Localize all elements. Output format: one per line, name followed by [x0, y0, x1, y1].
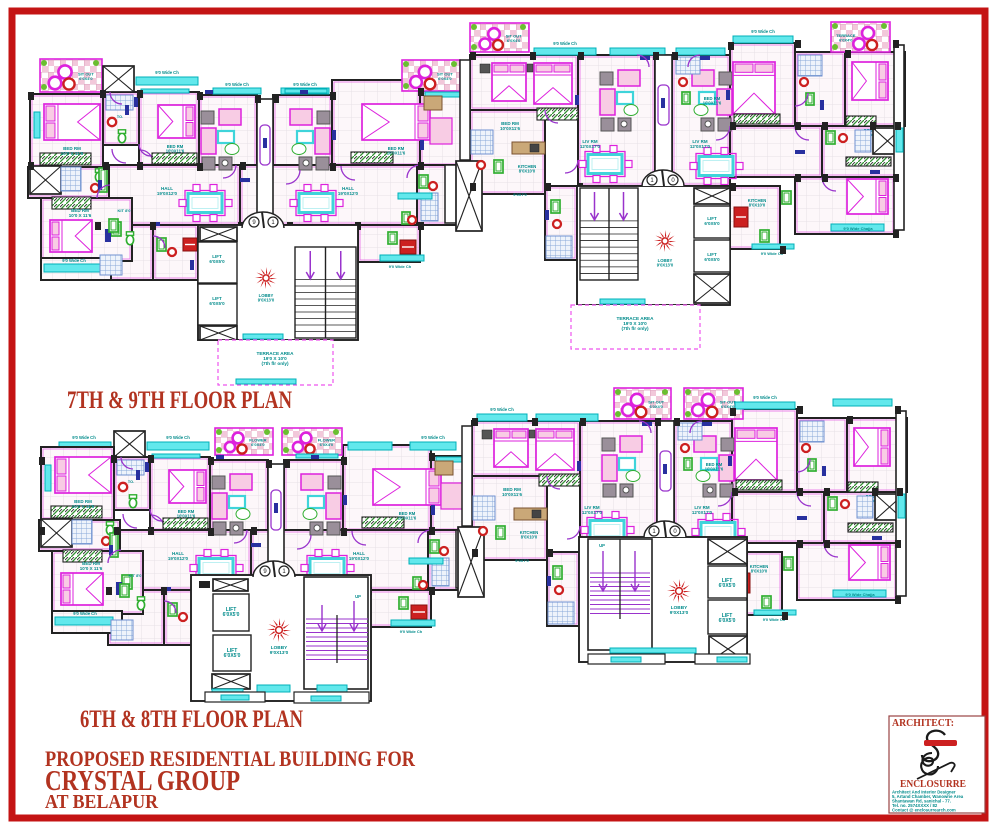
svg-text:6'0X4'0: 6'0X4'0 — [438, 76, 452, 81]
svg-text:19'0X12'0: 19'0X12'0 — [157, 191, 178, 196]
svg-text:TO.: TO. — [117, 115, 123, 119]
svg-text:10'0X11'6: 10'0X11'6 — [166, 149, 185, 154]
svg-text:ENCLOSURRE: ENCLOSURRE — [900, 778, 966, 790]
svg-text:19'0X12'0: 19'0X12'0 — [168, 556, 189, 561]
svg-text:6TH & 8TH FLOOR PLAN: 6TH & 8TH FLOOR PLAN — [80, 706, 303, 733]
svg-text:12'0X17'0: 12'0X17'0 — [692, 510, 713, 515]
svg-text:Contact @ enclosurrearch.com: Contact @ enclosurrearch.com — [892, 808, 956, 813]
svg-text:9'0 Wide Ch: 9'0 Wide Ch — [751, 29, 775, 34]
svg-text:7TH & 9TH FLOOR PLAN: 7TH & 9TH FLOOR PLAN — [67, 387, 292, 414]
svg-text:9'0X7'0: 9'0X7'0 — [513, 192, 527, 197]
svg-text:9'0 Wide Ch: 9'0 Wide Ch — [753, 395, 777, 400]
svg-text:6'0X4'0: 6'0X4'0 — [320, 442, 334, 447]
svg-text:8'0X10'0: 8'0X10'0 — [749, 203, 766, 208]
svg-text:12'0X17'0: 12'0X17'0 — [690, 144, 711, 149]
svg-text:10'0 X 11'6: 10'0 X 11'6 — [80, 566, 103, 571]
svg-text:6'0X4'0: 6'0X4'0 — [79, 76, 93, 81]
svg-text:9'0 Wide Ch: 9'0 Wide Ch — [73, 611, 97, 616]
svg-text:9'0 Wide Ch: 9'0 Wide Ch — [293, 82, 317, 87]
svg-text:6'0X5'0: 6'0X5'0 — [719, 583, 736, 589]
svg-text:10'0X11'6: 10'0X11'6 — [398, 516, 417, 521]
svg-text:KIT 8'0: KIT 8'0 — [129, 573, 143, 578]
svg-text:(7th flr only): (7th flr only) — [621, 326, 649, 331]
svg-text:10'0X11'6: 10'0X11'6 — [705, 467, 724, 472]
svg-text:6'0X5'0: 6'0X5'0 — [209, 301, 225, 306]
svg-text:UP: UP — [355, 594, 361, 599]
svg-text:8'0X10'0: 8'0X10'0 — [521, 535, 538, 540]
svg-text:6'0X4'0: 6'0X4'0 — [649, 404, 663, 409]
svg-text:9'0 Wide Ch: 9'0 Wide Ch — [490, 407, 514, 412]
svg-text:8'0X10'0: 8'0X10'0 — [751, 569, 768, 574]
svg-text:9'0X13'0: 9'0X13'0 — [670, 610, 689, 615]
svg-text:10'0 X 11'6: 10'0 X 11'6 — [72, 504, 95, 509]
svg-text:9'0X7'0: 9'0X7'0 — [515, 558, 529, 563]
svg-text:9'0 Wide Ch: 9'0 Wide Ch — [166, 435, 190, 440]
svg-text:6'0X4'0: 6'0X4'0 — [251, 442, 265, 447]
svg-text:9'0 Wide Ch: 9'0 Wide Ch — [225, 82, 249, 87]
svg-text:UP: UP — [599, 543, 605, 548]
svg-text:ARCHITECT:: ARCHITECT: — [892, 717, 954, 729]
svg-text:12'0X17'0: 12'0X17'0 — [582, 510, 603, 515]
svg-text:9'0 Wide Ch: 9'0 Wide Ch — [155, 70, 179, 75]
svg-text:12'0X17'0: 12'0X17'0 — [580, 144, 601, 149]
svg-text:9'0 Wide Ch: 9'0 Wide Ch — [389, 264, 412, 269]
svg-text:9'0 Wide Ch: 9'0 Wide Ch — [553, 41, 577, 46]
svg-text:9'0 Wide Chajja: 9'0 Wide Chajja — [843, 226, 873, 231]
svg-text:6'0X5'0: 6'0X5'0 — [704, 257, 720, 262]
svg-text:10'0X11'6: 10'0X11'6 — [387, 151, 406, 156]
svg-text:(7th flr only): (7th flr only) — [261, 361, 289, 366]
svg-text:10'0X11'6: 10'0X11'6 — [703, 101, 722, 106]
svg-text:KIT 8'0: KIT 8'0 — [118, 208, 132, 213]
svg-text:9'0X13'0: 9'0X13'0 — [258, 298, 275, 303]
svg-text:10'0X11'6: 10'0X11'6 — [502, 492, 522, 497]
svg-text:6'0X4'0: 6'0X4'0 — [507, 38, 521, 43]
svg-text:10'0X11'6: 10'0X11'6 — [177, 514, 196, 519]
svg-text:19'0X12'0: 19'0X12'0 — [349, 556, 370, 561]
svg-text:6'0X5'0: 6'0X5'0 — [704, 221, 720, 226]
svg-text:9'0 Wide Ch: 9'0 Wide Ch — [62, 258, 86, 263]
svg-text:10'0 X 11'6: 10'0 X 11'6 — [61, 151, 84, 156]
svg-text:9'0 Wide Ch: 9'0 Wide Ch — [421, 435, 445, 440]
svg-text:9'0 Wide Ch: 9'0 Wide Ch — [72, 435, 96, 440]
svg-text:9'0 Wide Chajja: 9'0 Wide Chajja — [845, 592, 875, 597]
svg-text:9'0X13'0: 9'0X13'0 — [657, 263, 674, 268]
svg-text:6'0X5'0: 6'0X5'0 — [719, 618, 736, 624]
svg-text:19'0X12'0: 19'0X12'0 — [338, 191, 359, 196]
svg-text:10'0 X 11'6: 10'0 X 11'6 — [69, 213, 92, 218]
svg-text:8'0X10'0: 8'0X10'0 — [519, 169, 536, 174]
svg-text:TO.: TO. — [128, 480, 134, 484]
svg-text:6'0X5'0: 6'0X5'0 — [223, 612, 240, 618]
svg-text:6'0X4'0: 6'0X4'0 — [839, 37, 853, 42]
svg-text:6'0X5'0: 6'0X5'0 — [224, 653, 241, 659]
svg-text:AT BELAPUR: AT BELAPUR — [45, 791, 158, 813]
svg-text:9'0 Wide Ch: 9'0 Wide Ch — [400, 629, 423, 634]
svg-text:9'0X13'0: 9'0X13'0 — [270, 650, 289, 655]
svg-text:10'0X11'6: 10'0X11'6 — [500, 126, 520, 131]
svg-text:6'0X5'0: 6'0X5'0 — [209, 259, 225, 264]
